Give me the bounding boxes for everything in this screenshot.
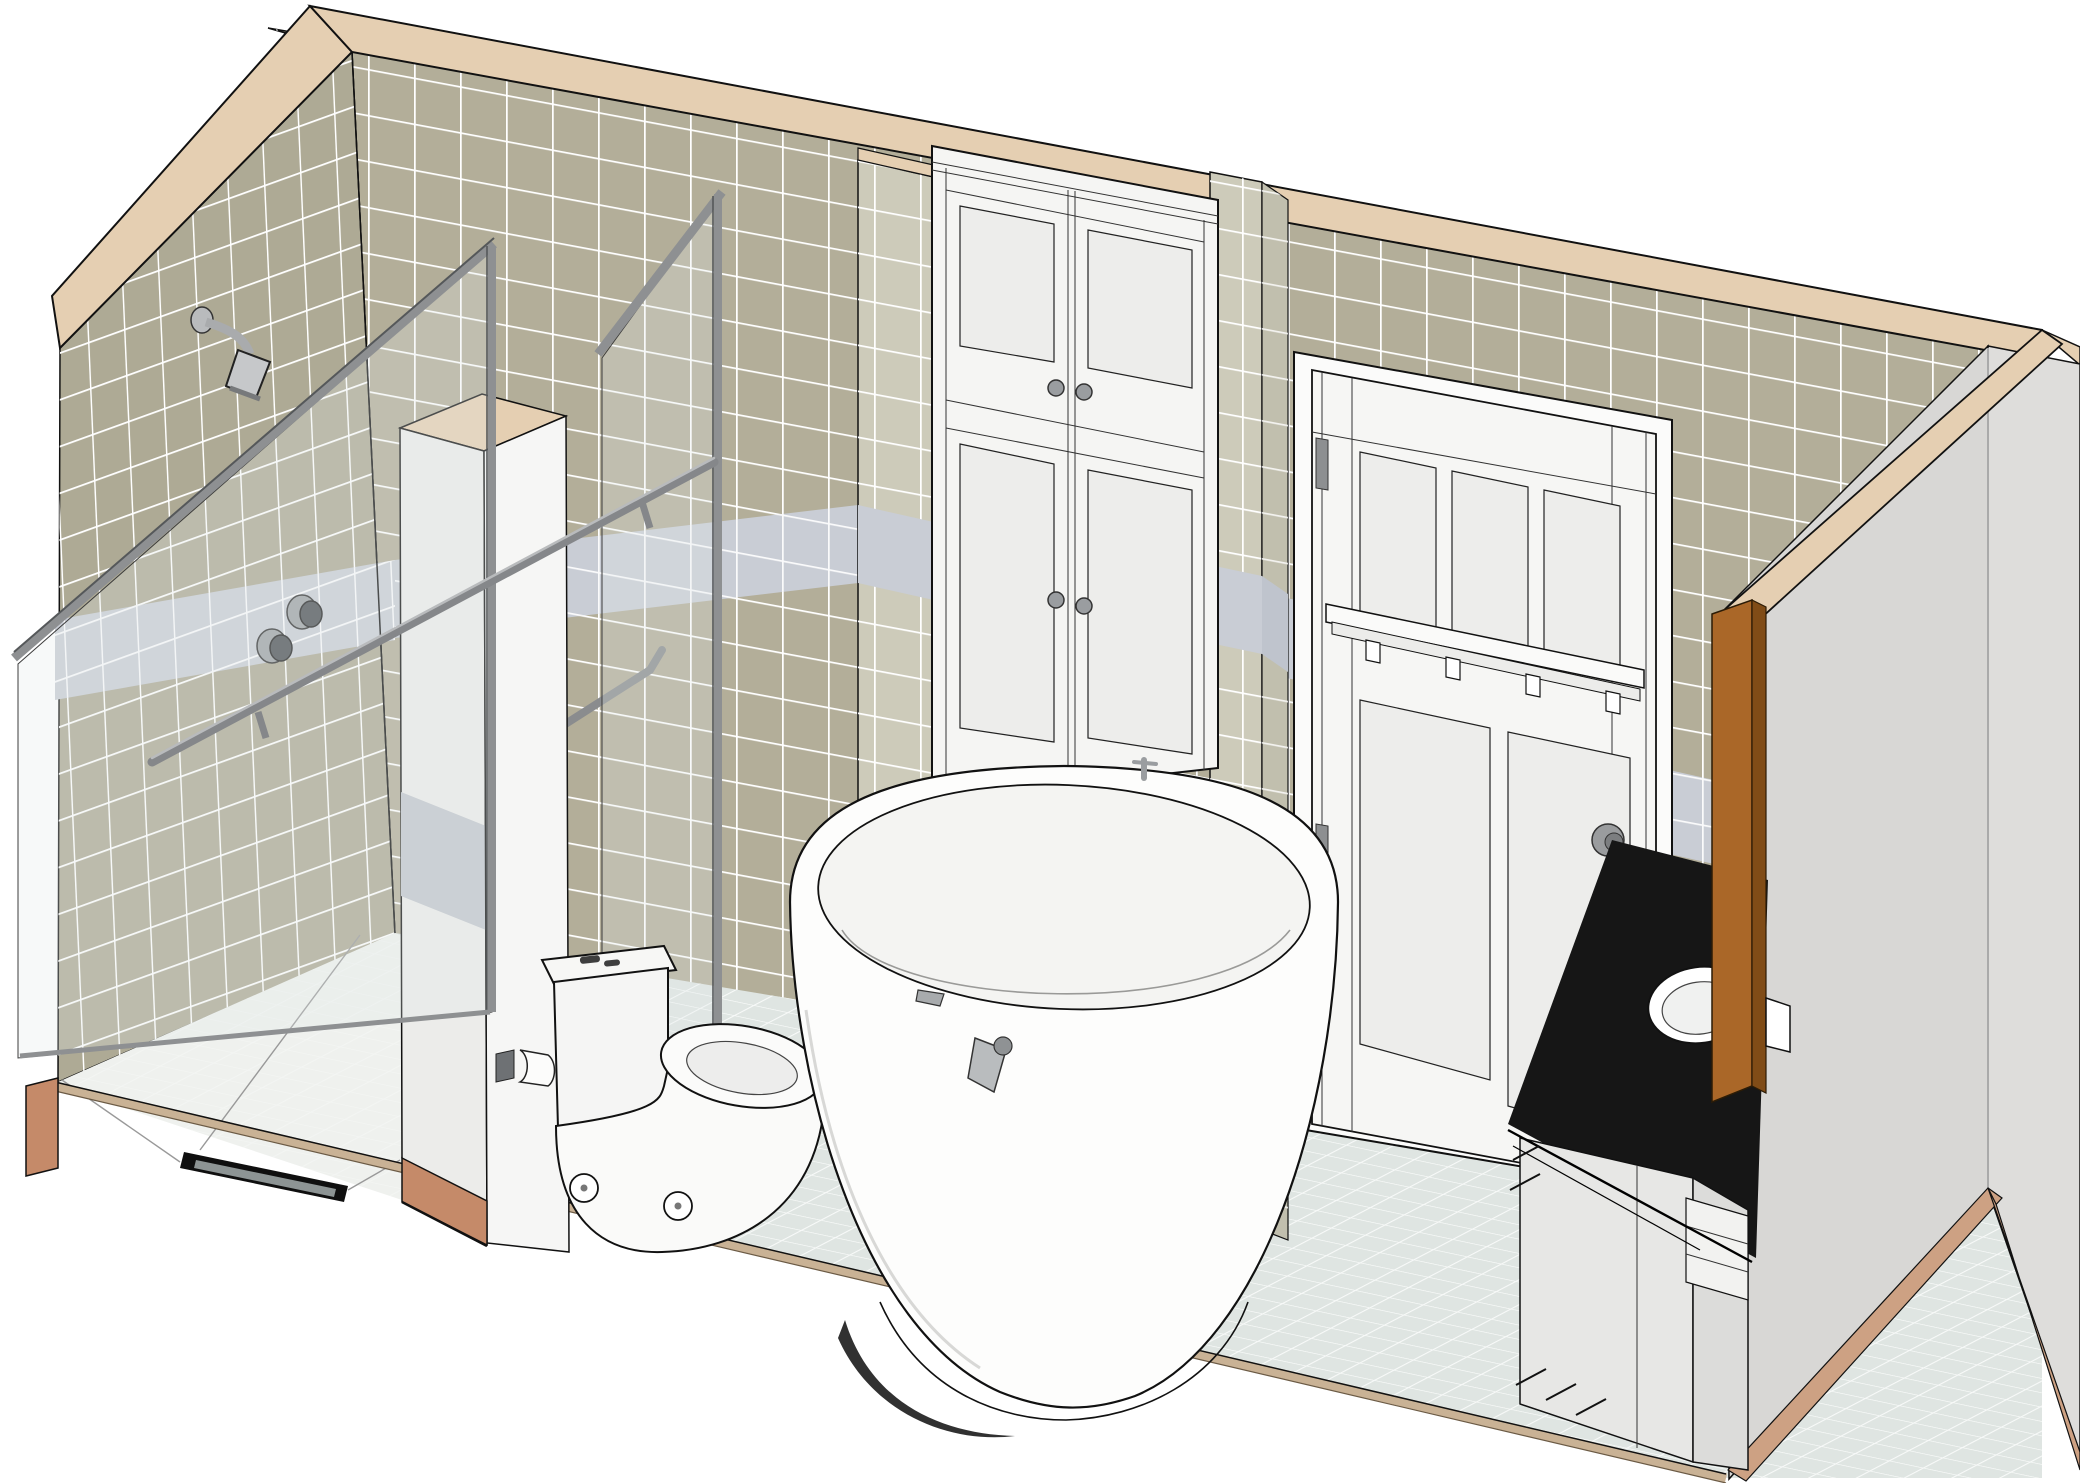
sink-sliver	[1766, 998, 1790, 1052]
cabinet-knob	[1048, 380, 1064, 396]
door-hinge	[1316, 438, 1328, 490]
cabinet-knob	[1076, 384, 1092, 400]
wall-section-cut-left	[26, 1078, 58, 1176]
vanity-base-front	[1520, 1138, 1693, 1462]
cabinet-knob	[1048, 592, 1064, 608]
storage-cabinet	[932, 146, 1218, 800]
bathroom-3d-rendering	[0, 0, 2080, 1483]
cabinet-knob	[1076, 598, 1092, 614]
vanity-drawers	[1686, 1198, 1748, 1300]
